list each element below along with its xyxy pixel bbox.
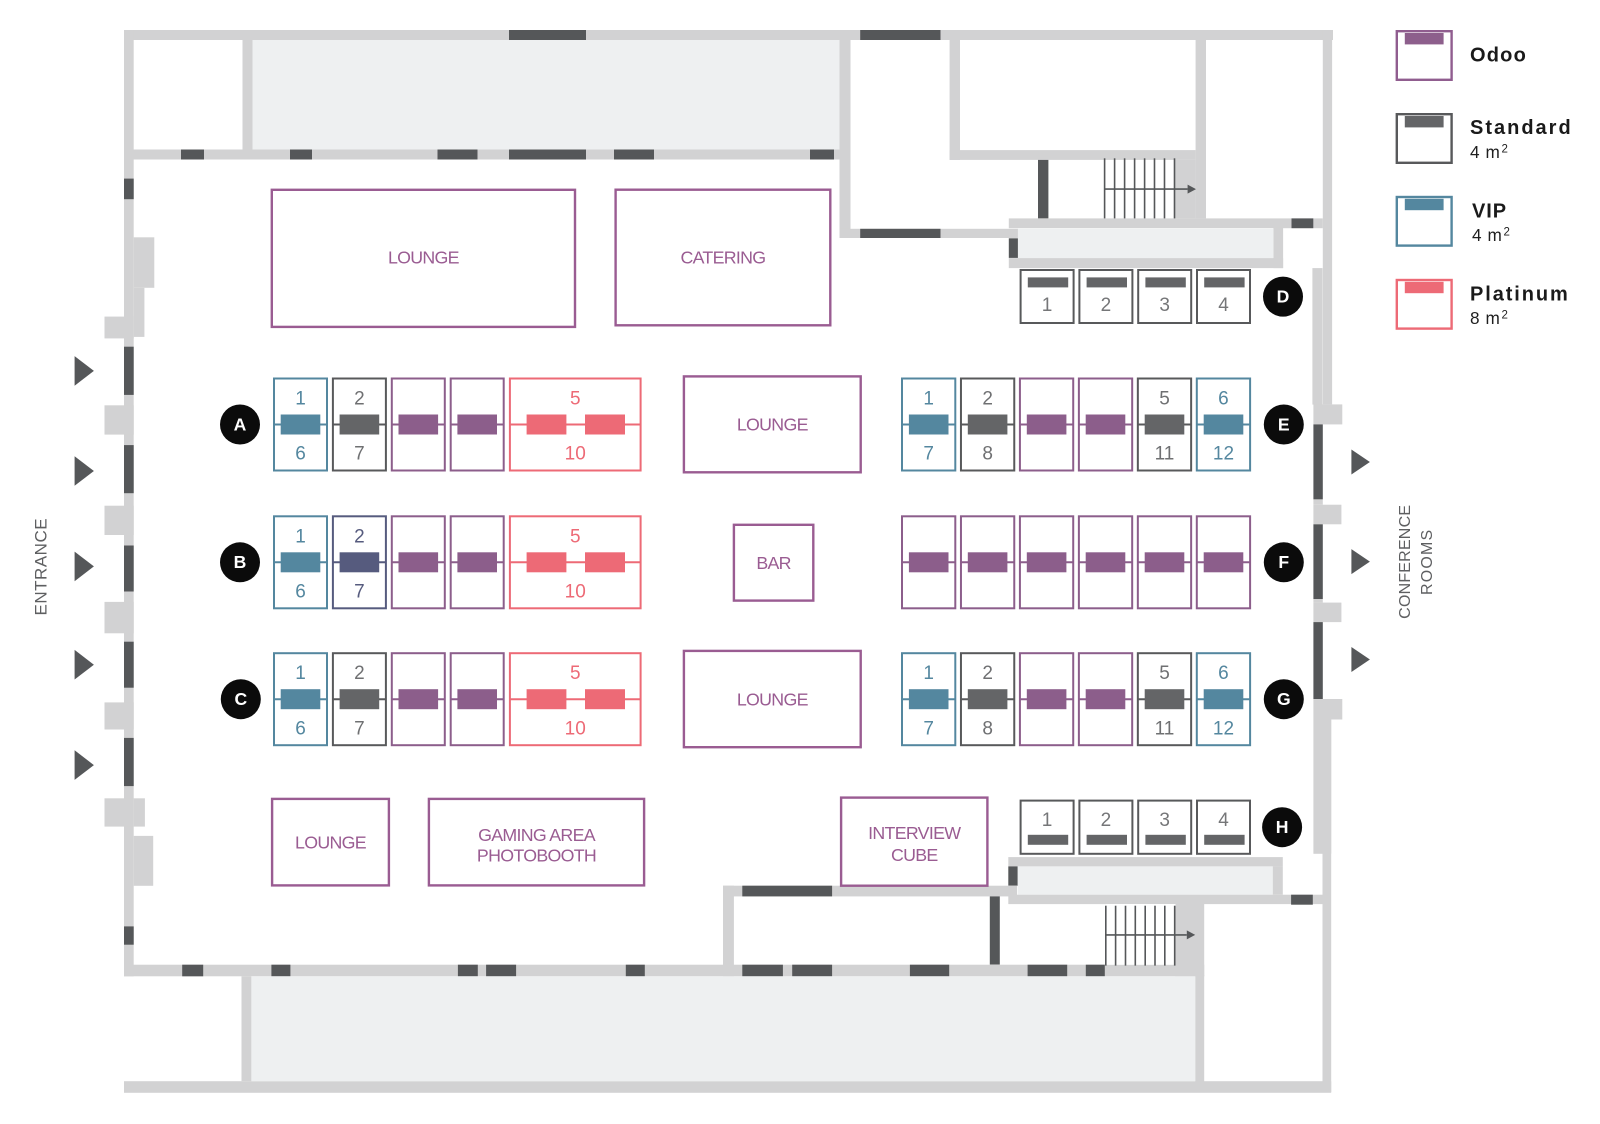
svg-text:3: 3 [1159,295,1170,316]
svg-text:Platinum: Platinum [1470,284,1570,306]
svg-text:7: 7 [923,444,934,465]
svg-text:5: 5 [570,663,581,684]
svg-text:G: G [1277,689,1291,709]
svg-text:CONFERENCE: CONFERENCE [1397,505,1414,619]
svg-text:2: 2 [354,663,365,684]
svg-text:11: 11 [1155,444,1175,465]
svg-text:LOUNGE: LOUNGE [737,415,809,435]
svg-text:5: 5 [570,526,581,547]
svg-text:ENTRANCE: ENTRANCE [31,518,50,616]
svg-text:10: 10 [565,444,586,465]
svg-text:8 m2: 8 m2 [1470,308,1508,328]
svg-text:C: C [234,689,247,709]
svg-text:6: 6 [1218,663,1229,684]
svg-text:CUBE: CUBE [891,845,938,865]
svg-text:6: 6 [295,444,306,465]
svg-text:6: 6 [1218,389,1229,410]
svg-text:1: 1 [295,526,306,547]
svg-text:PHOTOBOOTH: PHOTOBOOTH [477,846,596,866]
svg-text:8: 8 [982,718,993,739]
svg-text:4: 4 [1218,295,1229,316]
svg-text:1: 1 [295,389,306,410]
svg-text:11: 11 [1155,718,1175,739]
svg-text:2: 2 [982,389,993,410]
svg-text:1: 1 [1042,295,1053,316]
svg-text:10: 10 [565,582,586,603]
svg-text:LOUNGE: LOUNGE [388,248,460,268]
svg-text:12: 12 [1213,444,1234,465]
svg-text:INTERVIEW: INTERVIEW [868,823,961,843]
svg-text:4 m2: 4 m2 [1470,142,1508,162]
svg-text:2: 2 [1101,810,1112,831]
svg-text:2: 2 [354,526,365,547]
svg-text:4 m2: 4 m2 [1472,225,1510,245]
svg-text:1: 1 [295,663,306,684]
svg-text:H: H [1276,817,1289,837]
svg-text:Standard: Standard [1470,117,1573,139]
svg-text:E: E [1278,414,1290,434]
svg-text:10: 10 [565,718,586,739]
svg-text:7: 7 [354,582,365,603]
svg-text:7: 7 [354,718,365,739]
svg-text:6: 6 [295,582,306,603]
svg-text:5: 5 [1159,663,1170,684]
svg-text:8: 8 [982,444,993,465]
svg-text:B: B [234,552,247,572]
svg-text:VIP: VIP [1472,201,1507,223]
svg-text:LOUNGE: LOUNGE [295,832,367,852]
svg-text:4: 4 [1218,810,1229,831]
svg-text:12: 12 [1213,718,1234,739]
svg-text:3: 3 [1159,810,1170,831]
svg-text:D: D [1277,287,1290,307]
svg-text:ROOMS: ROOMS [1419,529,1436,595]
svg-text:2: 2 [354,389,365,410]
svg-text:CATERING: CATERING [680,248,765,268]
svg-text:1: 1 [923,663,934,684]
svg-text:A: A [234,414,247,434]
svg-text:BAR: BAR [756,553,791,573]
svg-text:2: 2 [982,663,993,684]
svg-text:5: 5 [570,389,581,410]
svg-text:GAMING AREA: GAMING AREA [478,825,596,845]
svg-text:F: F [1278,552,1289,572]
svg-text:1: 1 [1042,810,1053,831]
svg-text:6: 6 [295,718,306,739]
svg-text:1: 1 [923,389,934,410]
svg-text:Odoo: Odoo [1470,45,1527,67]
svg-text:7: 7 [354,444,365,465]
svg-text:7: 7 [923,718,934,739]
svg-text:LOUNGE: LOUNGE [737,689,809,709]
svg-text:5: 5 [1159,389,1170,410]
svg-text:2: 2 [1101,295,1112,316]
